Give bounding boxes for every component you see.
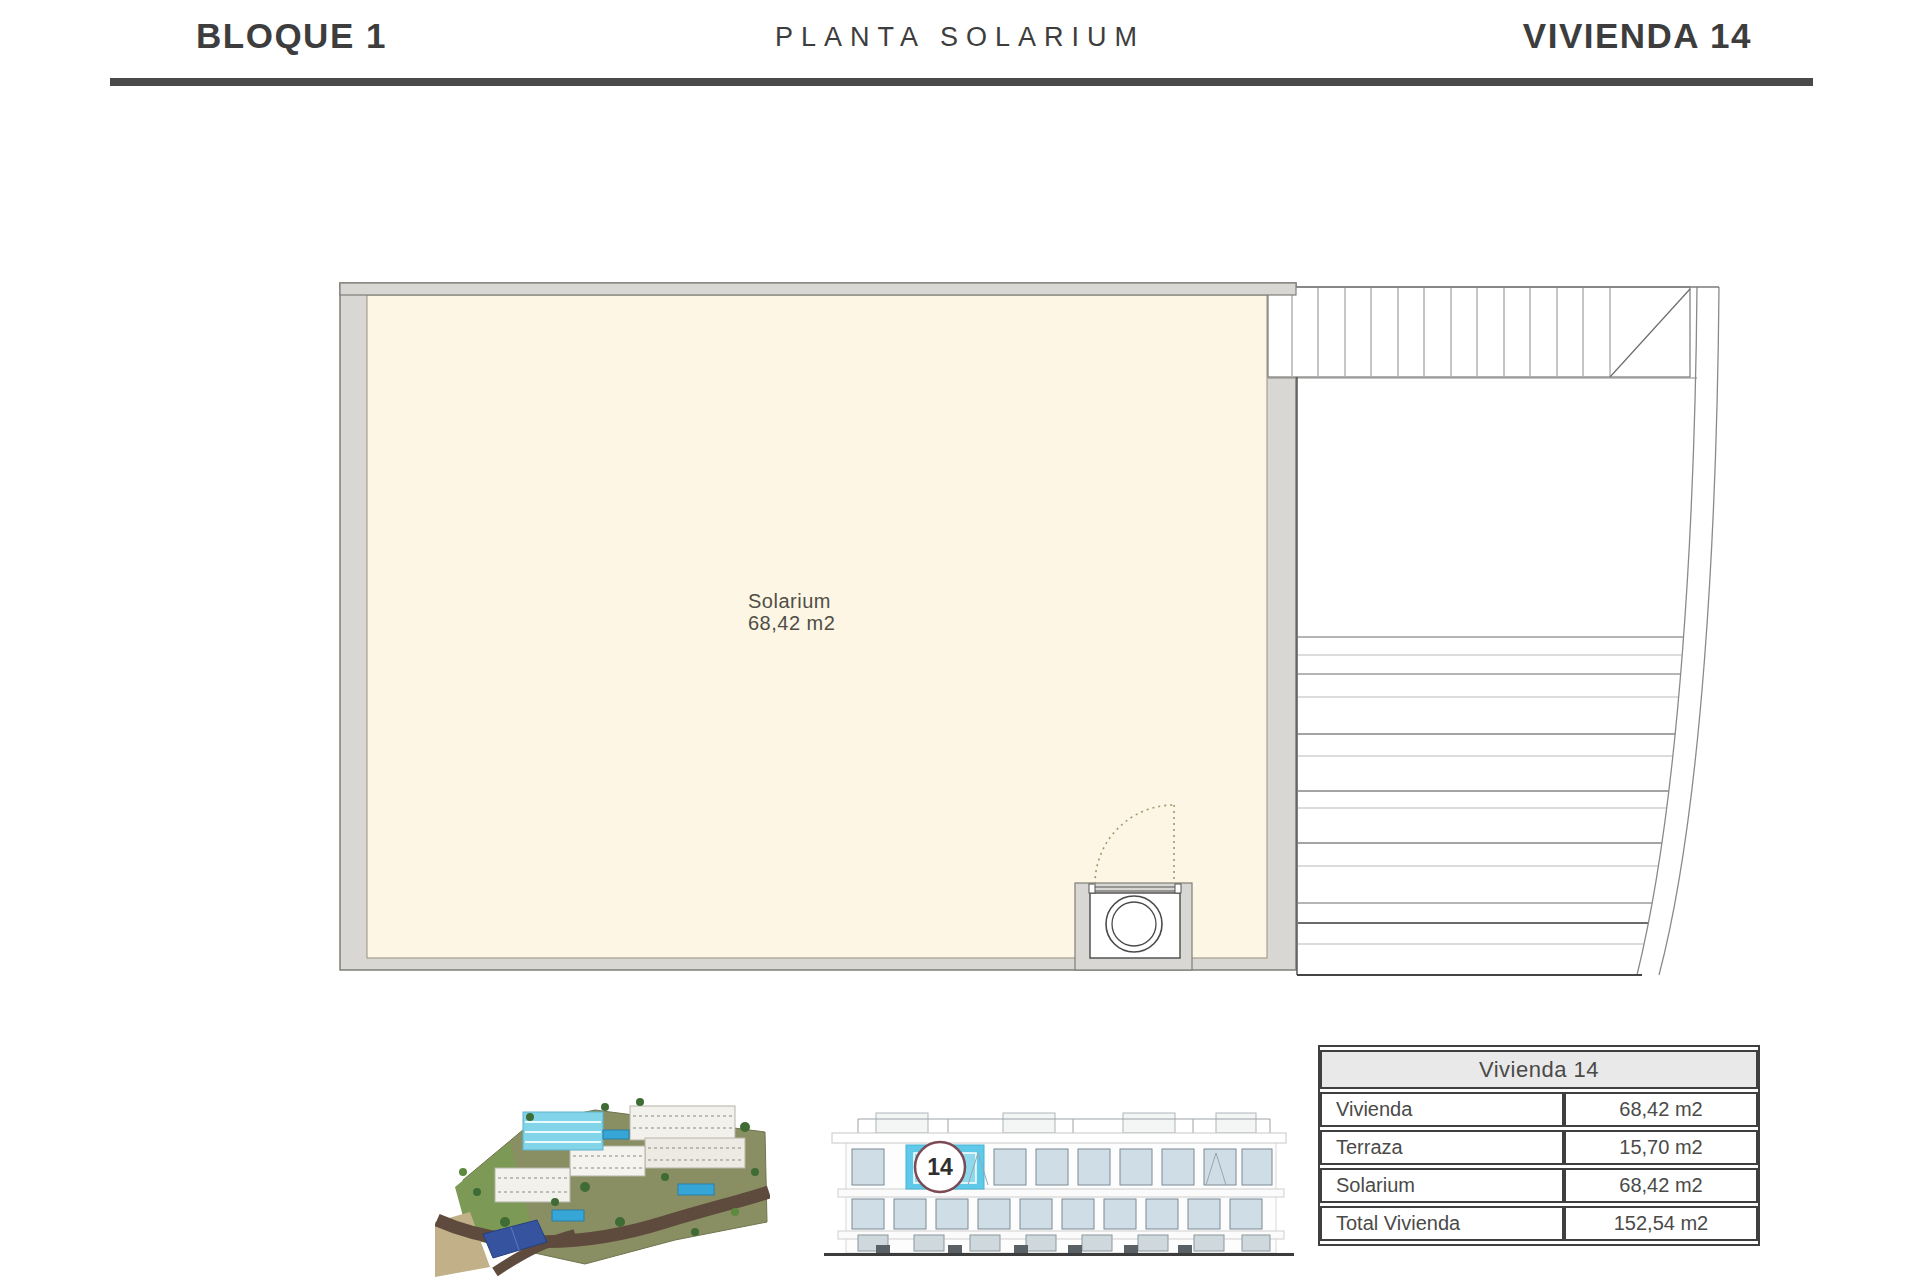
stairwell-upper-flight xyxy=(1268,287,1719,377)
unit-number-text: 14 xyxy=(927,1154,953,1180)
row-label: Vivienda xyxy=(1320,1092,1564,1127)
stairwell-boundaries xyxy=(1268,377,1697,975)
row-value: 15,70 m2 xyxy=(1564,1130,1758,1165)
stairwell-lower-treads xyxy=(1298,637,1700,944)
row-label: Terraza xyxy=(1320,1130,1564,1165)
row-label: Total Vivienda xyxy=(1320,1206,1564,1241)
jacuzzi-alcove xyxy=(1075,883,1192,970)
ground-line xyxy=(824,1253,1294,1256)
row-value: 152,54 m2 xyxy=(1564,1206,1758,1241)
unit-number-badge: 14 xyxy=(915,1142,965,1192)
roof-railings xyxy=(858,1113,1270,1133)
building-elevation: 14 xyxy=(818,1105,1300,1270)
row-value: 68,42 m2 xyxy=(1564,1168,1758,1203)
table-row: Vivienda 68,42 m2 xyxy=(1320,1092,1758,1127)
curved-wall-mask xyxy=(1637,287,1920,975)
room-name-text: Solarium xyxy=(748,590,831,612)
brochure-page: BLOQUE 1 PLANTA SOLARIUM VIVIENDA 14 xyxy=(0,0,1920,1280)
row-label: Solarium xyxy=(1320,1168,1564,1203)
unit-summary-table: Vivienda 14 Vivienda 68,42 m2 Terraza 15… xyxy=(1318,1045,1760,1246)
row-value: 68,42 m2 xyxy=(1564,1092,1758,1127)
highlighted-building xyxy=(523,1112,603,1150)
table-row: Total Vivienda 152,54 m2 xyxy=(1320,1206,1758,1241)
aerial-render xyxy=(435,1072,770,1277)
top-wall xyxy=(340,283,1296,295)
room-label: Solarium 68,42 m2 xyxy=(748,590,835,634)
table-title: Vivienda 14 xyxy=(1320,1050,1758,1089)
table-row: Terraza 15,70 m2 xyxy=(1320,1130,1758,1165)
table-row: Solarium 68,42 m2 xyxy=(1320,1168,1758,1203)
room-area-text: 68,42 m2 xyxy=(748,612,835,634)
table-title-row: Vivienda 14 xyxy=(1320,1050,1758,1089)
